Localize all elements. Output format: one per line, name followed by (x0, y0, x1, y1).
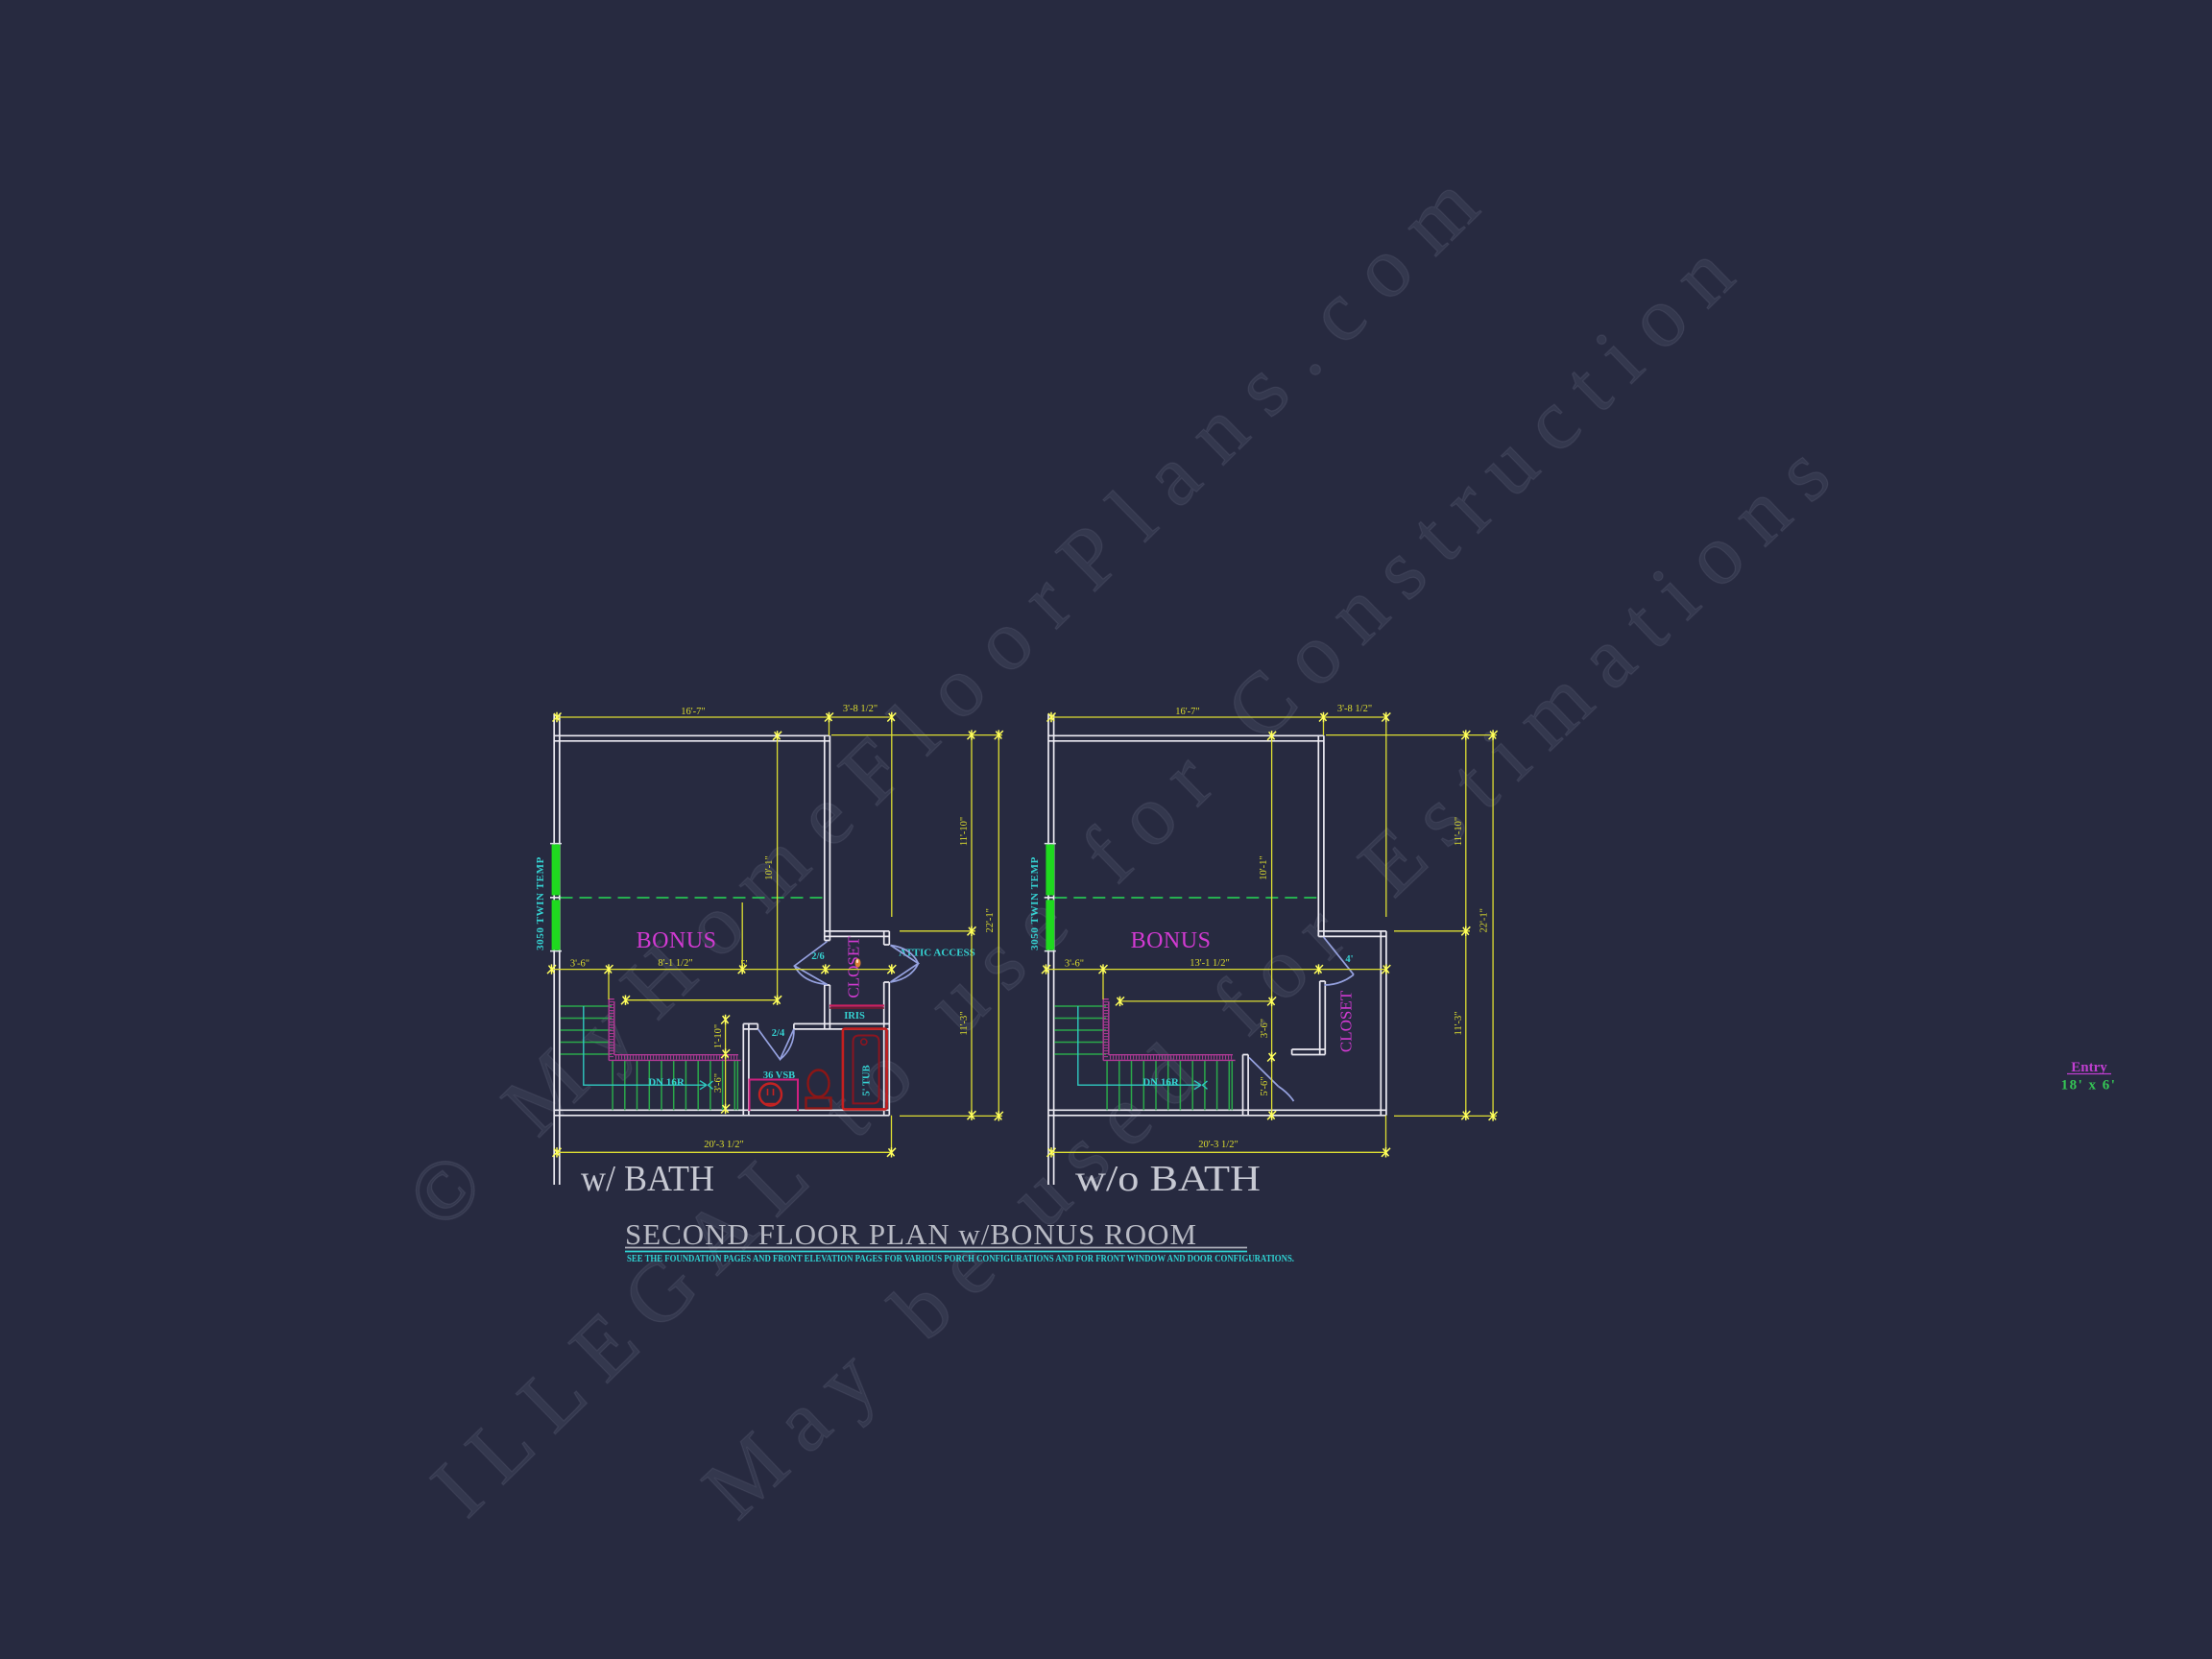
svg-text:3'-6": 3'-6" (1260, 1019, 1270, 1038)
svg-text:11'-3": 11'-3" (1454, 1011, 1464, 1035)
svg-text:3'-8 1/2": 3'-8 1/2" (843, 704, 878, 714)
svg-text:3050 TWIN TEMP: 3050 TWIN TEMP (535, 856, 546, 950)
svg-text:DN 16R: DN 16R (648, 1077, 685, 1089)
svg-text:IRIS: IRIS (844, 1011, 865, 1022)
svg-text:3'-6": 3'-6" (1065, 959, 1084, 970)
svg-text:4': 4' (1345, 954, 1353, 965)
svg-text:5'-6": 5'-6" (1260, 1076, 1270, 1095)
svg-text:5': 5' (740, 959, 747, 970)
svg-text:w/ BATH: w/ BATH (581, 1159, 714, 1199)
svg-text:11'-10": 11'-10" (959, 817, 970, 846)
svg-text:22'-1": 22'-1" (985, 908, 996, 932)
svg-text:CLOSET: CLOSET (845, 936, 863, 998)
svg-text:BONUS: BONUS (637, 928, 717, 953)
svg-text:36 VSB: 36 VSB (763, 1070, 795, 1081)
svg-text:18' x 6': 18' x 6' (2061, 1078, 2117, 1094)
svg-text:BONUS: BONUS (1131, 928, 1212, 953)
svg-text:3050 TWIN TEMP: 3050 TWIN TEMP (1029, 856, 1041, 950)
svg-text:8'-1 1/2": 8'-1 1/2" (658, 958, 692, 969)
svg-text:2/4: 2/4 (772, 1028, 785, 1039)
svg-text:CLOSET: CLOSET (1337, 990, 1356, 1052)
svg-text:22'-1": 22'-1" (1479, 908, 1490, 932)
svg-text:5' TUB: 5' TUB (862, 1065, 873, 1095)
svg-text:2/6: 2/6 (811, 951, 824, 962)
svg-text:3'-6": 3'-6" (570, 959, 589, 970)
svg-text:10'-1": 10'-1" (1259, 855, 1269, 879)
svg-text:16'-7": 16'-7" (1175, 707, 1199, 717)
svg-text:10'-1": 10'-1" (764, 855, 775, 879)
svg-text:SEE THE FOUNDATION PAGES AND F: SEE THE FOUNDATION PAGES AND FRONT ELEVA… (627, 1253, 1294, 1264)
svg-text:DN 16R: DN 16R (1142, 1077, 1180, 1089)
svg-text:16'-7": 16'-7" (681, 707, 705, 717)
svg-text:20'-3 1/2": 20'-3 1/2" (1198, 1140, 1238, 1150)
svg-text:w/o BATH: w/o BATH (1075, 1159, 1261, 1199)
svg-text:Entry: Entry (2071, 1060, 2107, 1075)
svg-text:20'-3 1/2": 20'-3 1/2" (704, 1140, 743, 1150)
svg-text:11'-10": 11'-10" (1454, 817, 1464, 846)
svg-text:SECOND FLOOR PLAN w/BONUS ROOM: SECOND FLOOR PLAN w/BONUS ROOM (625, 1217, 1197, 1251)
svg-text:13'-1 1/2": 13'-1 1/2" (1190, 958, 1229, 969)
svg-text:11'-3": 11'-3" (959, 1011, 970, 1035)
svg-text:1'-10": 1'-10" (713, 1024, 724, 1048)
svg-text:3'-6": 3'-6" (713, 1073, 724, 1093)
svg-text:3'-8 1/2": 3'-8 1/2" (1337, 704, 1372, 714)
